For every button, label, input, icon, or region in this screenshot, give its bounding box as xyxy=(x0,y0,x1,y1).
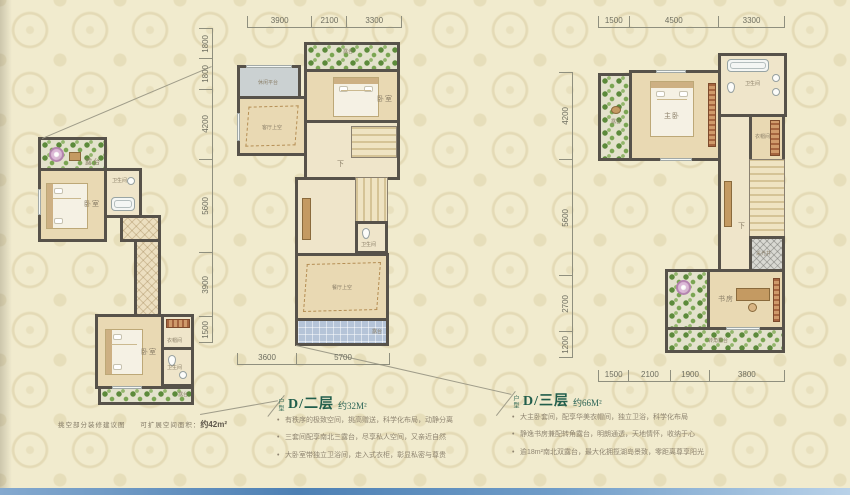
mid-hall xyxy=(295,177,358,256)
right-corner-terrace-bottom: 转角露台 xyxy=(665,327,785,353)
dim-label: 2700 xyxy=(562,295,570,313)
unit-prefix-label: 户型 xyxy=(512,395,518,409)
caption-area-value: 约42m² xyxy=(200,420,227,429)
plan-area-text: 约66M² xyxy=(573,399,602,409)
room-label: 卧室 xyxy=(84,201,100,208)
dim-chain-left: 1800 1800 4200 5600 3900 1500 xyxy=(199,28,213,343)
toilet xyxy=(727,82,735,93)
pillow xyxy=(113,364,122,370)
flower-decor xyxy=(49,147,64,162)
console-table xyxy=(302,198,311,240)
dim-label: 3900 xyxy=(202,276,210,294)
room-label: 卫生间 xyxy=(112,179,127,184)
left-closet: 衣帽间 xyxy=(161,314,194,350)
dim-label: 1500 xyxy=(202,321,210,339)
room-label: 露台 xyxy=(372,330,382,335)
dim-label: 1900 xyxy=(681,371,699,381)
dim-segment: 4200 xyxy=(199,89,212,159)
left-bath-2: 卫生间 xyxy=(161,347,194,387)
sink xyxy=(127,177,135,185)
dim-label: 1500 xyxy=(605,17,623,27)
dim-segment: 3900 xyxy=(247,16,311,27)
window xyxy=(112,386,142,389)
sink xyxy=(179,371,187,379)
room-label: 卫生间 xyxy=(167,366,182,371)
room-label: 卧室 xyxy=(141,349,157,356)
bullet-item: 三套间配享南北三露台，尽享私人空间，又亲近自然 xyxy=(277,434,477,442)
dim-label: 1500 xyxy=(605,371,623,381)
room-label: 客厅上空 xyxy=(262,126,282,131)
dim-label: 1200 xyxy=(562,336,570,354)
desk xyxy=(736,288,770,301)
pillow xyxy=(679,91,688,97)
bullet-item: 静逸书房兼配转角露台，明朗通透，天地情怀，收纳于心 xyxy=(512,431,727,439)
dim-label: 5700 xyxy=(334,354,352,364)
pillow xyxy=(364,86,373,92)
staircase xyxy=(351,126,397,158)
dim-chain-top: 1500 4500 3300 xyxy=(598,16,785,28)
dim-segment: 1500 xyxy=(598,370,628,381)
window xyxy=(656,70,686,73)
plan-title-text: D/二层 xyxy=(288,398,334,412)
mid-leisure-platform: 休闲平台 xyxy=(237,65,301,99)
dim-label: 1800 xyxy=(202,35,210,53)
dim-segment: 2100 xyxy=(628,370,670,381)
unit-prefix-label: 户型 xyxy=(277,398,283,412)
dim-segment: 1800 xyxy=(199,28,212,58)
dim-segment: 4200 xyxy=(559,72,572,159)
toilet xyxy=(362,228,370,239)
window xyxy=(726,327,760,330)
pillow xyxy=(656,91,665,97)
dim-label: 3900 xyxy=(271,17,289,27)
dim-segment: 5700 xyxy=(296,353,390,364)
wardrobe xyxy=(708,83,716,147)
room-label: 露台 xyxy=(343,50,353,55)
bullet-item: 逾18m²南北双露台，最大化拥揽湖岛景致，零距离尊享阳光 xyxy=(512,449,727,457)
window xyxy=(237,113,240,141)
terrace-table xyxy=(611,106,621,114)
terrace-table xyxy=(69,152,81,161)
right-corner-terrace-side xyxy=(665,269,710,331)
footer-blue-bar xyxy=(0,488,850,495)
room-label: 卧室 xyxy=(377,96,393,103)
plan-area-text: 约32M² xyxy=(338,402,367,412)
mid-plan-bullets: 有秩序的极致空间，挑高赠送，科学化布局，动静分离 三套间配享南北三露台，尽享私人… xyxy=(277,417,477,469)
room-label: 露台 xyxy=(85,159,101,166)
dim-label: 2100 xyxy=(641,371,659,381)
room-label: 采光井 xyxy=(756,252,771,257)
bullet-item: 大卧室带独立卫浴间，走入式衣柜，彰显私密与尊贵 xyxy=(277,452,477,460)
room-label: 书房 xyxy=(718,296,734,303)
caption-title: 挑空部分装修建议图 xyxy=(58,422,126,429)
flower-decor xyxy=(676,280,691,295)
dim-segment: 2100 xyxy=(311,16,346,27)
room-label: 转角露台 xyxy=(708,339,728,344)
room-label: 主卧 xyxy=(664,113,680,120)
left-terrace-top: 露台 xyxy=(38,137,107,171)
dim-segment: 4500 xyxy=(629,16,719,27)
plan-title-text: D/三层 xyxy=(523,395,569,409)
dim-chain-bottom: 1500 2100 1900 3800 xyxy=(598,370,785,382)
dim-segment: 1200 xyxy=(559,331,572,357)
mid-living-void: 客厅上空 xyxy=(237,96,307,156)
dim-segment: 1900 xyxy=(670,370,708,381)
page-edge-shadow xyxy=(0,0,12,495)
left-bath-1: 卫生间 xyxy=(104,168,142,218)
dim-label: 3300 xyxy=(365,17,383,27)
dim-label: 5600 xyxy=(562,209,570,227)
pillow xyxy=(54,188,63,194)
bullet-item: 大主卧套间，配享华美衣帽间，独立卫浴，科学化布局 xyxy=(512,414,727,422)
dim-chain-left: 4200 5600 2700 1200 xyxy=(559,72,573,358)
console-table xyxy=(724,181,732,227)
dim-label: 2100 xyxy=(320,17,338,27)
dim-label: 3600 xyxy=(258,354,276,364)
stair-down-label: 下 xyxy=(337,161,345,168)
floorplan-sheet: 露台 卧室 卫生间 卧室 衣帽间 xyxy=(0,0,850,495)
dim-segment: 3300 xyxy=(718,16,785,27)
room-label: 衣帽间 xyxy=(167,339,182,344)
right-bath: 卫生间 xyxy=(718,53,787,117)
sink xyxy=(772,74,780,82)
stair-down-label: 下 xyxy=(738,223,746,230)
dim-segment: 5600 xyxy=(199,159,212,252)
pillow xyxy=(113,334,122,340)
mid-stair-hall: 下 xyxy=(304,120,400,180)
dim-segment: 1500 xyxy=(598,16,629,27)
window xyxy=(246,65,292,68)
right-light-shaft: 采光井 xyxy=(749,236,785,272)
room-label: 露台 xyxy=(611,120,621,125)
right-terrace: 露台 xyxy=(598,73,632,161)
window xyxy=(660,158,692,161)
bed xyxy=(46,183,88,229)
mid-stairs-2 xyxy=(355,177,388,224)
right-master-bedroom: 主卧 xyxy=(629,70,721,161)
mid-bedroom: 卧室 xyxy=(304,69,400,123)
bathtub xyxy=(727,59,769,72)
dim-segment: 3800 xyxy=(709,370,785,381)
dim-segment: 2700 xyxy=(559,275,572,331)
room-label: 餐厅上空 xyxy=(332,286,352,291)
plan-d-third-floor: 1500 4500 3300 4200 5600 2700 1200 1500 … xyxy=(555,15,800,395)
mid-terrace-bottom: 露台 xyxy=(295,318,389,346)
left-corridor xyxy=(134,239,161,317)
dim-segment: 3300 xyxy=(346,16,402,27)
left-bedroom-2: 卧室 xyxy=(95,314,164,389)
right-closet: 衣帽间 xyxy=(749,114,785,162)
room-label: 卫生间 xyxy=(745,82,760,87)
sink xyxy=(772,88,780,96)
room-label: 休闲平台 xyxy=(258,81,278,86)
dim-chain-bottom: 3600 5700 xyxy=(237,353,390,365)
projection-line-left-to-mid xyxy=(42,66,212,139)
right-stairs: 下 xyxy=(749,159,785,239)
wardrobe xyxy=(166,319,190,328)
right-hall xyxy=(718,114,752,275)
mid-dining-void: 餐厅上空 xyxy=(295,253,389,321)
dim-segment: 5600 xyxy=(559,159,572,275)
room-label: 衣帽间 xyxy=(755,135,770,140)
bed xyxy=(105,329,143,375)
mid-plan-title: 户型 D/二层 约32M² xyxy=(277,398,367,412)
pillow xyxy=(54,218,63,224)
bullet-item: 有秩序的极致空间，挑高赠送，科学化布局，动静分离 xyxy=(277,417,477,425)
bathtub xyxy=(111,197,135,211)
plan-d-second-floor: 3900 2100 3300 1800 1800 4200 5600 3900 … xyxy=(195,15,410,375)
dim-label: 4500 xyxy=(665,17,683,27)
room-label: 露台 xyxy=(178,393,188,398)
wardrobe xyxy=(770,120,780,156)
dim-segment: 3600 xyxy=(237,353,296,364)
left-bedroom-1: 卧室 xyxy=(38,168,107,242)
plan-left-void-suggestion: 露台 卧室 卫生间 卧室 衣帽间 xyxy=(38,133,198,443)
dim-chain-top: 3900 2100 3300 xyxy=(247,16,402,28)
right-plan-title: 户型 D/三层 约66M² xyxy=(512,395,602,409)
bed xyxy=(650,81,694,137)
right-plan-bullets: 大主卧套间，配享华美衣帽间，独立卫浴，科学化布局 静逸书房兼配转角露台，明朗通透… xyxy=(512,414,727,466)
dim-label: 1800 xyxy=(202,65,210,83)
mid-terrace-top: 露台 xyxy=(304,42,400,72)
dim-label: 3800 xyxy=(738,371,756,381)
window xyxy=(38,189,41,215)
dim-label: 5600 xyxy=(202,197,210,215)
dim-segment: 1800 xyxy=(199,58,212,88)
dim-label: 4200 xyxy=(202,115,210,133)
dim-label: 4200 xyxy=(562,107,570,125)
right-study: 书房 xyxy=(707,269,785,330)
bookshelf xyxy=(773,278,780,322)
mid-bath: 卫生间 xyxy=(355,221,388,254)
left-landing xyxy=(120,215,161,242)
room-label: 卫生间 xyxy=(361,243,376,248)
dim-segment: 1500 xyxy=(199,316,212,342)
projection-line-caption-to-title xyxy=(200,400,278,415)
bed xyxy=(333,77,379,117)
chair xyxy=(748,303,757,312)
dim-segment: 3900 xyxy=(199,252,212,317)
dim-label: 3300 xyxy=(743,17,761,27)
pillow xyxy=(339,86,348,92)
left-plan-caption: 挑空部分装修建议图 可扩展空间面积：约42m² xyxy=(58,419,227,430)
caption-label: 可扩展空间面积： xyxy=(140,422,200,429)
